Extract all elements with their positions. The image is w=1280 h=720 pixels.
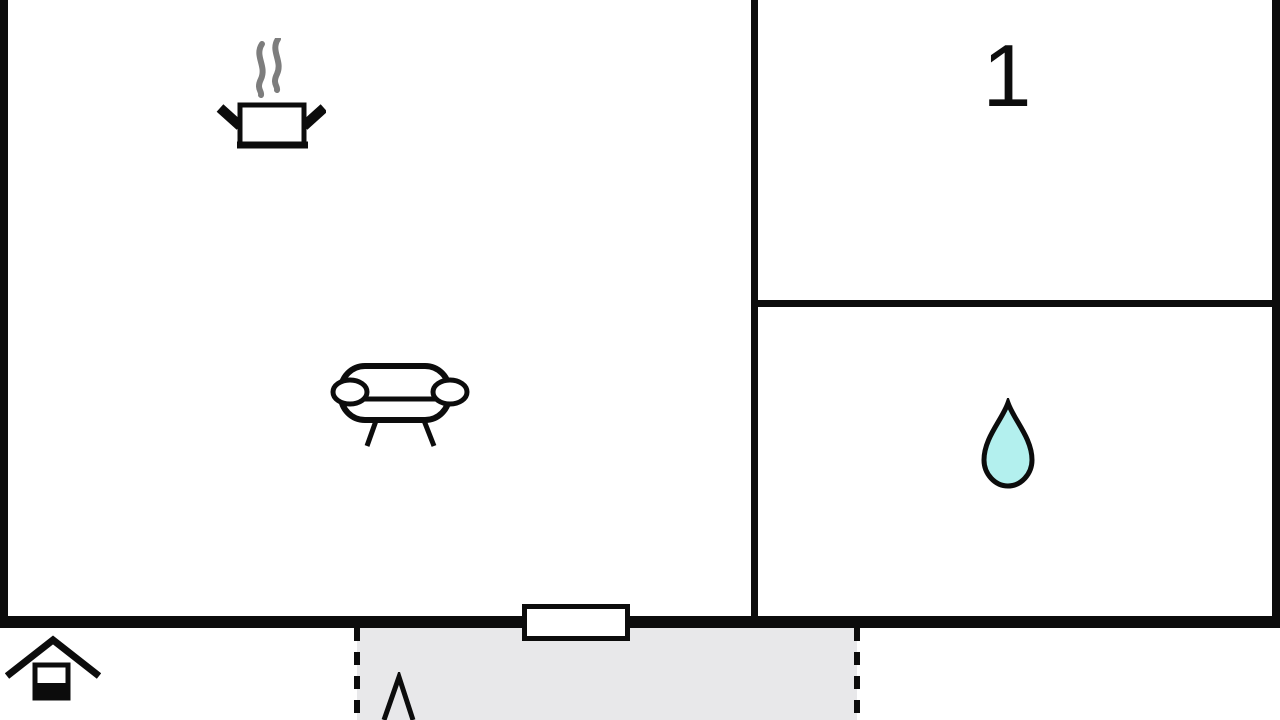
cooking-pot-icon xyxy=(216,38,326,152)
wall-right xyxy=(1272,0,1280,628)
wall-bottom xyxy=(0,616,1280,628)
wall-divider-horizontal xyxy=(758,300,1272,307)
terrace-dashed-border-left xyxy=(354,628,360,720)
room-kitchen-living xyxy=(8,0,751,616)
window-marker xyxy=(522,604,630,641)
tree-icon xyxy=(376,672,420,720)
wall-left xyxy=(0,0,8,628)
floor-plan: 1 xyxy=(0,0,1280,720)
wall-divider-vertical xyxy=(751,0,758,616)
house-icon xyxy=(5,635,101,707)
sofa-icon xyxy=(328,358,472,450)
water-drop-icon xyxy=(978,398,1038,492)
terrace-area xyxy=(357,628,857,720)
terrace-dashed-border-right xyxy=(854,628,860,720)
room-number-label: 1 xyxy=(937,32,1077,120)
